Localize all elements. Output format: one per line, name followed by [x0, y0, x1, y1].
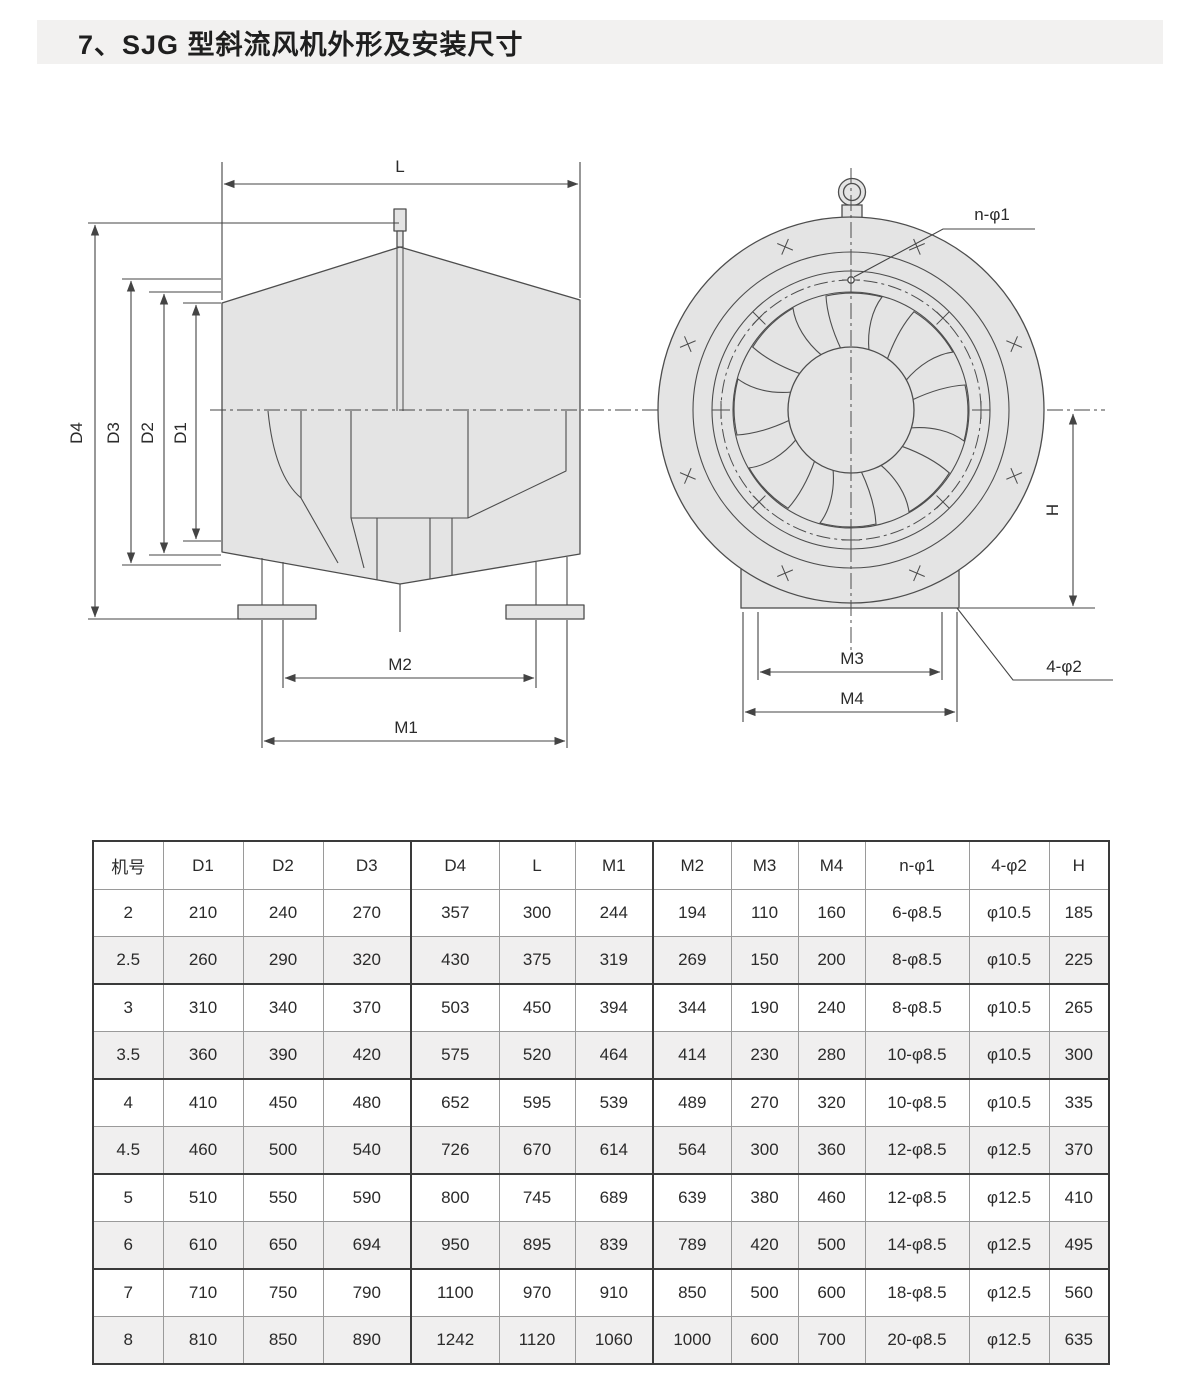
table-cell: 1242 — [411, 1317, 499, 1365]
table-cell: φ12.5 — [969, 1317, 1049, 1365]
table-cell: 1100 — [411, 1269, 499, 1317]
table-cell: 1120 — [499, 1317, 575, 1365]
table-cell: 300 — [731, 1127, 798, 1175]
dim-label-M2: M2 — [388, 655, 412, 674]
table-cell: 1000 — [653, 1317, 731, 1365]
table-cell: 910 — [575, 1269, 653, 1317]
table-cell: 590 — [323, 1174, 411, 1222]
side-view-casing — [222, 247, 580, 584]
dimension-table-body: 22102402703573002441941101606-φ8.5φ10.51… — [93, 890, 1109, 1365]
side-view-left-foot — [238, 605, 316, 619]
table-cell: 810 — [163, 1317, 243, 1365]
table-cell: 5 — [93, 1174, 163, 1222]
column-header: D1 — [163, 841, 243, 890]
column-header: M4 — [798, 841, 865, 890]
dim-label-H: H — [1043, 504, 1062, 516]
table-cell: 3 — [93, 984, 163, 1032]
table-cell: 564 — [653, 1127, 731, 1175]
dim-label-4-phi2: 4-φ2 — [1046, 657, 1082, 676]
column-header: 4-φ2 — [969, 841, 1049, 890]
table-cell: 800 — [411, 1174, 499, 1222]
table-cell: 110 — [731, 890, 798, 937]
table-cell: 410 — [163, 1079, 243, 1127]
table-cell: 639 — [653, 1174, 731, 1222]
table-cell: 560 — [1049, 1269, 1109, 1317]
table-cell: 3.5 — [93, 1032, 163, 1080]
table-cell: 710 — [163, 1269, 243, 1317]
table-cell: 503 — [411, 984, 499, 1032]
table-cell: 1060 — [575, 1317, 653, 1365]
front-view-drawing — [658, 168, 1044, 650]
table-cell: 7 — [93, 1269, 163, 1317]
table-cell: 4.5 — [93, 1127, 163, 1175]
table-cell: φ10.5 — [969, 1079, 1049, 1127]
table-cell: 185 — [1049, 890, 1109, 937]
table-cell: 300 — [1049, 1032, 1109, 1080]
table-row: 2.52602903204303753192691502008-φ8.5φ10.… — [93, 937, 1109, 985]
table-cell: 269 — [653, 937, 731, 985]
column-header: n-φ1 — [865, 841, 969, 890]
table-cell: 4 — [93, 1079, 163, 1127]
table-cell: 319 — [575, 937, 653, 985]
table-cell: 635 — [1049, 1317, 1109, 1365]
table-cell: 20-φ8.5 — [865, 1317, 969, 1365]
column-header: H — [1049, 841, 1109, 890]
table-cell: 320 — [323, 937, 411, 985]
table-cell: 270 — [323, 890, 411, 937]
table-cell: 230 — [731, 1032, 798, 1080]
table-cell: 265 — [1049, 984, 1109, 1032]
table-cell: 10-φ8.5 — [865, 1032, 969, 1080]
table-cell: 726 — [411, 1127, 499, 1175]
table-cell: φ12.5 — [969, 1127, 1049, 1175]
table-cell: 460 — [798, 1174, 865, 1222]
table-cell: φ12.5 — [969, 1174, 1049, 1222]
table-cell: 489 — [653, 1079, 731, 1127]
table-header-row: 机号 D1 D2 D3 D4 L M1 M2 M3 M4 n-φ1 4-φ2 H — [93, 841, 1109, 890]
dim-label-M1: M1 — [394, 718, 418, 737]
table-cell: 370 — [1049, 1127, 1109, 1175]
dim-label-M4: M4 — [840, 689, 864, 708]
column-header: M2 — [653, 841, 731, 890]
side-view-pin — [394, 209, 406, 231]
table-cell: 244 — [575, 890, 653, 937]
table-cell: 540 — [323, 1127, 411, 1175]
table-cell: 420 — [323, 1032, 411, 1080]
table-cell: 340 — [243, 984, 323, 1032]
table-cell: 650 — [243, 1222, 323, 1270]
table-cell: 500 — [731, 1269, 798, 1317]
table-row: 4.546050054072667061456430036012-φ8.5φ12… — [93, 1127, 1109, 1175]
dim-label-D1: D1 — [171, 422, 190, 444]
column-header: D4 — [411, 841, 499, 890]
table-cell: 970 — [499, 1269, 575, 1317]
table-cell: 190 — [731, 984, 798, 1032]
table-cell: 850 — [653, 1269, 731, 1317]
table-cell: 600 — [731, 1317, 798, 1365]
dim-label-D3: D3 — [104, 422, 123, 444]
table-cell: 370 — [323, 984, 411, 1032]
table-cell: 375 — [499, 937, 575, 985]
table-cell: φ10.5 — [969, 1032, 1049, 1080]
table-row: 7710750790110097091085050060018-φ8.5φ12.… — [93, 1269, 1109, 1317]
table-cell: 600 — [798, 1269, 865, 1317]
dim-label-D4: D4 — [67, 422, 86, 444]
table-cell: 420 — [731, 1222, 798, 1270]
table-row: 22102402703573002441941101606-φ8.5φ10.51… — [93, 890, 1109, 937]
dim-label-M3: M3 — [840, 649, 864, 668]
table-row: 441045048065259553948927032010-φ8.5φ10.5… — [93, 1079, 1109, 1127]
table-cell: 890 — [323, 1317, 411, 1365]
table-cell: 240 — [798, 984, 865, 1032]
table-cell: 8-φ8.5 — [865, 937, 969, 985]
table-cell: 360 — [798, 1127, 865, 1175]
table-cell: 789 — [653, 1222, 731, 1270]
table-cell: 6 — [93, 1222, 163, 1270]
table-cell: 360 — [163, 1032, 243, 1080]
table-cell: 335 — [1049, 1079, 1109, 1127]
table-cell: 510 — [163, 1174, 243, 1222]
table-cell: 390 — [243, 1032, 323, 1080]
table-cell: 460 — [163, 1127, 243, 1175]
table-row: 3.536039042057552046441423028010-φ8.5φ10… — [93, 1032, 1109, 1080]
table-cell: 520 — [499, 1032, 575, 1080]
table-cell: φ10.5 — [969, 984, 1049, 1032]
table-cell: 410 — [1049, 1174, 1109, 1222]
table-cell: 480 — [323, 1079, 411, 1127]
table-cell: 8-φ8.5 — [865, 984, 969, 1032]
table-cell: 450 — [243, 1079, 323, 1127]
table-cell: 614 — [575, 1127, 653, 1175]
fan-installation-drawing: L D4 D3 D2 D1 M2 M1 — [0, 0, 1200, 800]
table-cell: 2.5 — [93, 937, 163, 985]
table-cell: 10-φ8.5 — [865, 1079, 969, 1127]
table-cell: 357 — [411, 890, 499, 937]
table-cell: 595 — [499, 1079, 575, 1127]
column-header: M3 — [731, 841, 798, 890]
table-cell: φ12.5 — [969, 1222, 1049, 1270]
table-cell: 500 — [243, 1127, 323, 1175]
table-cell: 280 — [798, 1032, 865, 1080]
table-cell: 12-φ8.5 — [865, 1127, 969, 1175]
dimension-table: 机号 D1 D2 D3 D4 L M1 M2 M3 M4 n-φ1 4-φ2 H… — [92, 840, 1110, 1365]
table-cell: 225 — [1049, 937, 1109, 985]
table-cell: 700 — [798, 1317, 865, 1365]
table-cell: 194 — [653, 890, 731, 937]
table-cell: 610 — [163, 1222, 243, 1270]
table-cell: 850 — [243, 1317, 323, 1365]
table-row: 661065069495089583978942050014-φ8.5φ12.5… — [93, 1222, 1109, 1270]
four-phi2-leader — [957, 608, 1113, 680]
table-cell: 464 — [575, 1032, 653, 1080]
table-cell: 14-φ8.5 — [865, 1222, 969, 1270]
table-row: 33103403705034503943441902408-φ8.5φ10.52… — [93, 984, 1109, 1032]
column-header: M1 — [575, 841, 653, 890]
table-cell: 290 — [243, 937, 323, 985]
table-cell: 414 — [653, 1032, 731, 1080]
table-cell: 495 — [1049, 1222, 1109, 1270]
table-cell: 895 — [499, 1222, 575, 1270]
table-cell: 160 — [798, 890, 865, 937]
table-cell: 6-φ8.5 — [865, 890, 969, 937]
table-cell: 652 — [411, 1079, 499, 1127]
table-row: 8810850890124211201060100060070020-φ8.5φ… — [93, 1317, 1109, 1365]
table-row: 551055059080074568963938046012-φ8.5φ12.5… — [93, 1174, 1109, 1222]
table-cell: 450 — [499, 984, 575, 1032]
table-cell: 689 — [575, 1174, 653, 1222]
table-cell: 550 — [243, 1174, 323, 1222]
table-cell: 750 — [243, 1269, 323, 1317]
table-cell: 745 — [499, 1174, 575, 1222]
column-header: 机号 — [93, 841, 163, 890]
table-cell: 394 — [575, 984, 653, 1032]
table-cell: 18-φ8.5 — [865, 1269, 969, 1317]
table-cell: 950 — [411, 1222, 499, 1270]
dim-label-D2: D2 — [138, 422, 157, 444]
table-cell: 2 — [93, 890, 163, 937]
dim-label-L: L — [395, 157, 404, 176]
table-cell: φ10.5 — [969, 937, 1049, 985]
table-cell: 500 — [798, 1222, 865, 1270]
column-header: L — [499, 841, 575, 890]
table-cell: 539 — [575, 1079, 653, 1127]
table-cell: 260 — [163, 937, 243, 985]
table-cell: 320 — [798, 1079, 865, 1127]
table-cell: 270 — [731, 1079, 798, 1127]
dim-label-n-phi1: n-φ1 — [974, 205, 1010, 224]
eyebolt-icon — [839, 179, 866, 206]
table-cell: φ12.5 — [969, 1269, 1049, 1317]
table-cell: 210 — [163, 890, 243, 937]
table-cell: 839 — [575, 1222, 653, 1270]
table-cell: 430 — [411, 937, 499, 985]
table-cell: 8 — [93, 1317, 163, 1365]
table-cell: 575 — [411, 1032, 499, 1080]
table-cell: 380 — [731, 1174, 798, 1222]
catalog-page: 7、SJG 型斜流风机外形及安装尺寸 — [0, 0, 1200, 1400]
column-header: D3 — [323, 841, 411, 890]
table-cell: 310 — [163, 984, 243, 1032]
table-cell: 12-φ8.5 — [865, 1174, 969, 1222]
table-cell: 694 — [323, 1222, 411, 1270]
table-cell: 300 — [499, 890, 575, 937]
table-cell: 344 — [653, 984, 731, 1032]
table-cell: 790 — [323, 1269, 411, 1317]
table-cell: 150 — [731, 937, 798, 985]
table-cell: 240 — [243, 890, 323, 937]
table-cell: 200 — [798, 937, 865, 985]
column-header: D2 — [243, 841, 323, 890]
side-view-drawing — [222, 209, 584, 619]
table-cell: 670 — [499, 1127, 575, 1175]
table-cell: φ10.5 — [969, 890, 1049, 937]
side-view-right-foot — [506, 605, 584, 619]
